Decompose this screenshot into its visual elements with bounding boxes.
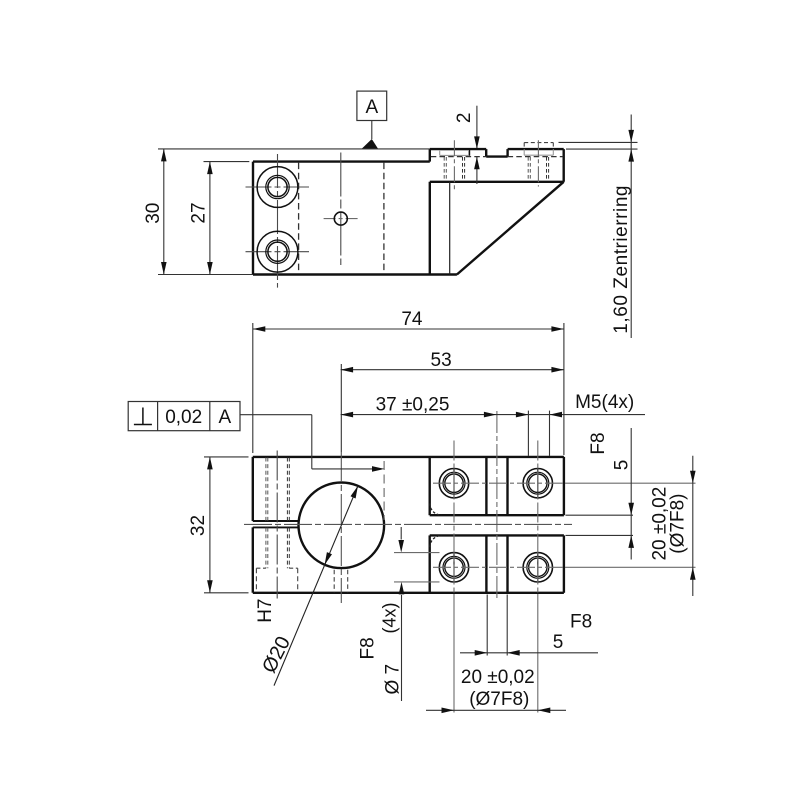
svg-text:5: 5 [612, 460, 633, 471]
svg-text:5: 5 [553, 632, 564, 653]
svg-text:Ø 7: Ø 7 [383, 664, 404, 695]
svg-text:1,60 Zentrierring: 1,60 Zentrierring [611, 185, 632, 334]
svg-text:M5(4x): M5(4x) [575, 392, 634, 413]
svg-text:F8: F8 [358, 637, 379, 659]
svg-text:H7: H7 [255, 599, 276, 623]
svg-text:A: A [365, 97, 378, 118]
svg-text:27: 27 [189, 202, 210, 223]
svg-text:(Ø7F8): (Ø7F8) [668, 494, 689, 554]
svg-text:32: 32 [188, 515, 209, 536]
svg-text:74: 74 [401, 309, 423, 330]
svg-text:20 ±0,02: 20 ±0,02 [461, 667, 535, 688]
svg-text:2: 2 [454, 113, 475, 124]
svg-text:37 ±0,25: 37 ±0,25 [376, 394, 450, 415]
svg-text:F8: F8 [588, 432, 609, 454]
svg-text:53: 53 [431, 350, 452, 371]
svg-text:(Ø7F8): (Ø7F8) [469, 689, 529, 710]
svg-text:A: A [219, 407, 232, 428]
svg-text:(4x): (4x) [380, 603, 400, 634]
svg-text:0,02: 0,02 [165, 407, 202, 428]
svg-text:30: 30 [143, 203, 164, 224]
svg-text:F8: F8 [570, 612, 592, 633]
